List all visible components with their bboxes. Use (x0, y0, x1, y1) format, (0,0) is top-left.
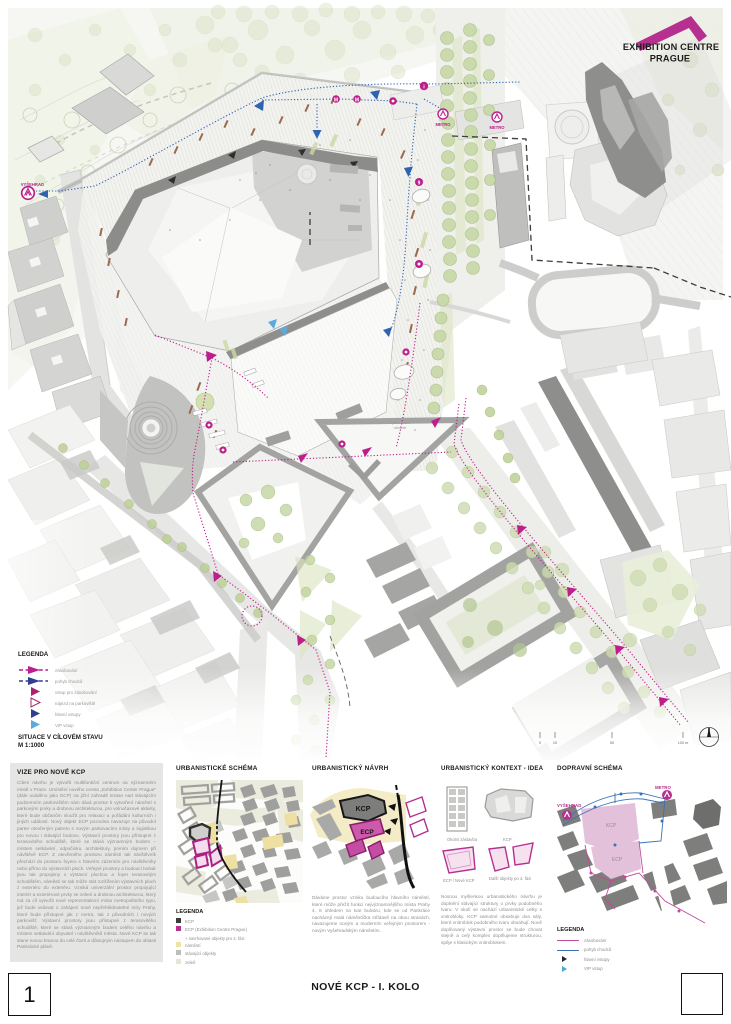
svg-text:Okolní zástavba: Okolní zástavba (447, 837, 478, 842)
svg-text:Vyšehradské: Vyšehradské (390, 421, 411, 425)
svg-text:M: M (334, 97, 338, 103)
svg-text:M 1:1000: M 1:1000 (18, 742, 45, 749)
svg-text:SITUACE V CÍLOVÉM STAVU: SITUACE V CÍLOVÉM STAVU (18, 733, 103, 741)
svg-text:50: 50 (610, 741, 614, 745)
svg-text:ECP / Nové KCP: ECP / Nové KCP (443, 878, 475, 883)
svg-text:10: 10 (553, 741, 557, 745)
svg-text:9: 9 (418, 180, 421, 186)
svg-text:VYŠEHRAD: VYŠEHRAD (557, 803, 581, 808)
svg-text:vstup pro zásobování: vstup pro zásobování (55, 690, 98, 695)
svg-text:METRO: METRO (435, 122, 451, 127)
svg-text:M: M (355, 97, 359, 103)
svg-text:nájezd na parkoviště: nájezd na parkoviště (55, 701, 96, 706)
svg-text:0: 0 (539, 741, 541, 745)
svg-text:VIP vstup: VIP vstup (55, 723, 74, 728)
svg-text:pohyb chodců: pohyb chodců (55, 679, 83, 684)
svg-text:Další objekty po 4. fázi: Další objekty po 4. fázi (489, 876, 531, 881)
svg-text:hlavní vstupy: hlavní vstupy (55, 712, 81, 717)
svg-text:METRO: METRO (489, 125, 505, 130)
svg-text:ECP: ECP (360, 829, 374, 836)
svg-text:ECP: ECP (612, 857, 623, 863)
svg-text:náměstí: náměstí (394, 426, 407, 430)
svg-text:LEGENDA: LEGENDA (18, 651, 49, 658)
svg-text:KCP: KCP (606, 823, 617, 829)
svg-text:EXHIBITION CENTRE: EXHIBITION CENTRE (623, 42, 719, 52)
svg-text:VYŠEHRAD: VYŠEHRAD (21, 182, 44, 187)
svg-text:KCP: KCP (356, 806, 371, 813)
svg-text:METRO: METRO (655, 785, 671, 790)
svg-text:PRAGUE: PRAGUE (650, 54, 691, 64)
svg-text:KCP: KCP (503, 837, 512, 842)
svg-text:100 m: 100 m (678, 741, 689, 745)
svg-text:zásobování: zásobování (55, 668, 78, 673)
